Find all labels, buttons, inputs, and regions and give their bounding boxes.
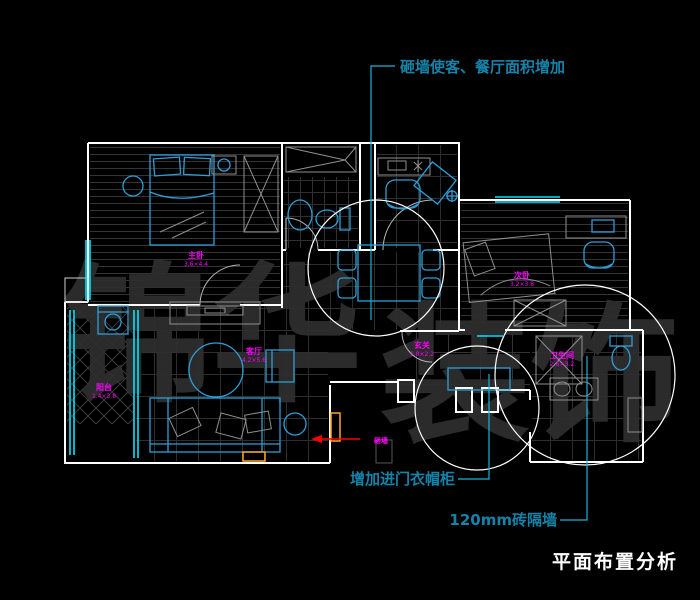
label-bathroom: 卫生间 (550, 350, 574, 360)
annotation-top: 砸墙使客、餐厅面积增加 (400, 58, 565, 76)
label-balcony-dim: 1.4×3.8 (92, 393, 116, 400)
annotation-partition: 120mm砖隔墙 (449, 511, 557, 529)
annotation-closet: 增加进门衣帽柜 (350, 470, 455, 488)
label-living-room-dim: 4.2×5.6 (242, 357, 266, 364)
label-living-room: 客厅 (245, 346, 262, 356)
label-second-bedroom: 次卧 (514, 270, 530, 280)
label-entry: 玄关 (414, 340, 430, 350)
label-balcony: 阳台 (96, 382, 112, 392)
label-bathroom-dim: 2.6×3.2 (550, 361, 574, 368)
page-title: 平面布置分析 (552, 550, 678, 573)
label-entry-dim: 1.8×2.2 (410, 351, 434, 358)
demolish-note: 砸墙 (374, 436, 388, 445)
label-master-bedroom: 主卧 (188, 250, 204, 260)
label-second-bedroom-dim: 3.2×3.8 (510, 281, 534, 288)
label-master-bedroom-dim: 3.6×4.4 (184, 261, 208, 268)
floor-plan-canvas: 锦华 装饰 (0, 0, 700, 600)
floor-plan-drawing: 锦华 装饰 (0, 0, 700, 600)
